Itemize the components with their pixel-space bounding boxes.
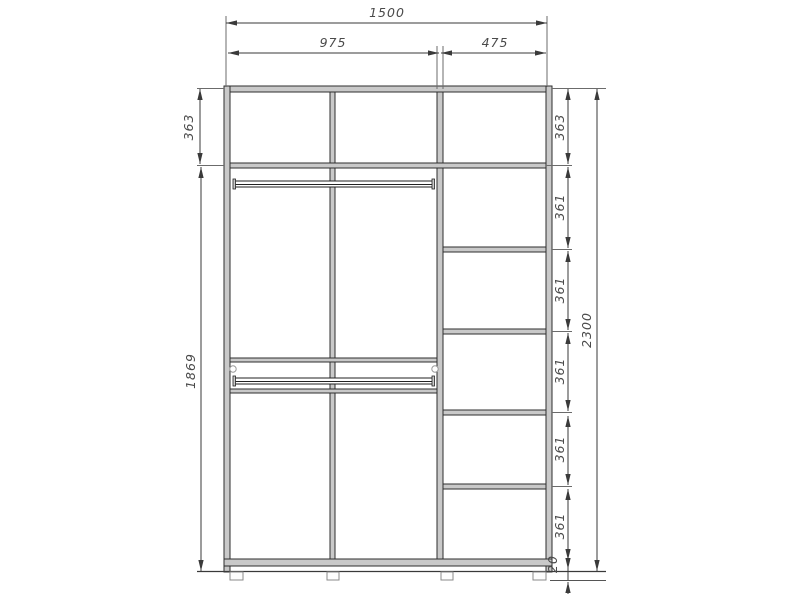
- label-feet-gap: 20: [547, 555, 560, 573]
- lower-rail-end-right: [432, 376, 435, 386]
- right-side-panel: [546, 86, 552, 572]
- drawing-lines: [0, 0, 800, 600]
- hanging-rail-upper: [233, 179, 435, 189]
- top-panel: [224, 86, 552, 92]
- label-right-stack-6: 361: [554, 513, 567, 540]
- right-shelf-1: [443, 247, 546, 252]
- wardrobe-dimension-drawing: 1500 975 475 363 1869 363 361 361 361 36…: [0, 0, 800, 600]
- label-left-top: 363: [183, 114, 196, 141]
- label-right-stack-2: 361: [554, 194, 567, 221]
- center-partition: [330, 92, 335, 559]
- foot-3: [441, 572, 453, 580]
- upper-rail-end-left: [233, 179, 236, 189]
- lower-rail-bracket-left: [230, 366, 236, 372]
- lower-rail-end-left: [233, 376, 236, 386]
- right-shelf-4: [443, 484, 546, 489]
- label-right-width: 475: [482, 37, 509, 50]
- right-shelf-3: [443, 410, 546, 415]
- label-total-height: 2300: [581, 312, 594, 348]
- label-right-stack-3: 361: [554, 277, 567, 304]
- foot-4: [533, 572, 546, 580]
- lower-rail-bracket-right: [432, 366, 438, 372]
- left-middle-shelf-lower: [230, 389, 437, 393]
- label-right-stack-5: 361: [554, 436, 567, 463]
- foot-1: [230, 572, 243, 580]
- upper-rail-end-right: [432, 179, 435, 189]
- bottom-panel: [224, 559, 552, 566]
- top-shelf: [230, 163, 546, 168]
- left-middle-shelf-upper: [230, 358, 437, 362]
- right-shelf-2: [443, 329, 546, 334]
- section-divider-panel: [437, 92, 443, 559]
- label-right-stack-4: 361: [554, 358, 567, 385]
- label-right-stack-1: 363: [554, 114, 567, 141]
- label-total-width: 1500: [369, 7, 405, 20]
- label-left-body: 1869: [185, 353, 198, 389]
- left-side-panel: [224, 86, 230, 572]
- label-left-width: 975: [320, 37, 347, 50]
- foot-2: [327, 572, 339, 580]
